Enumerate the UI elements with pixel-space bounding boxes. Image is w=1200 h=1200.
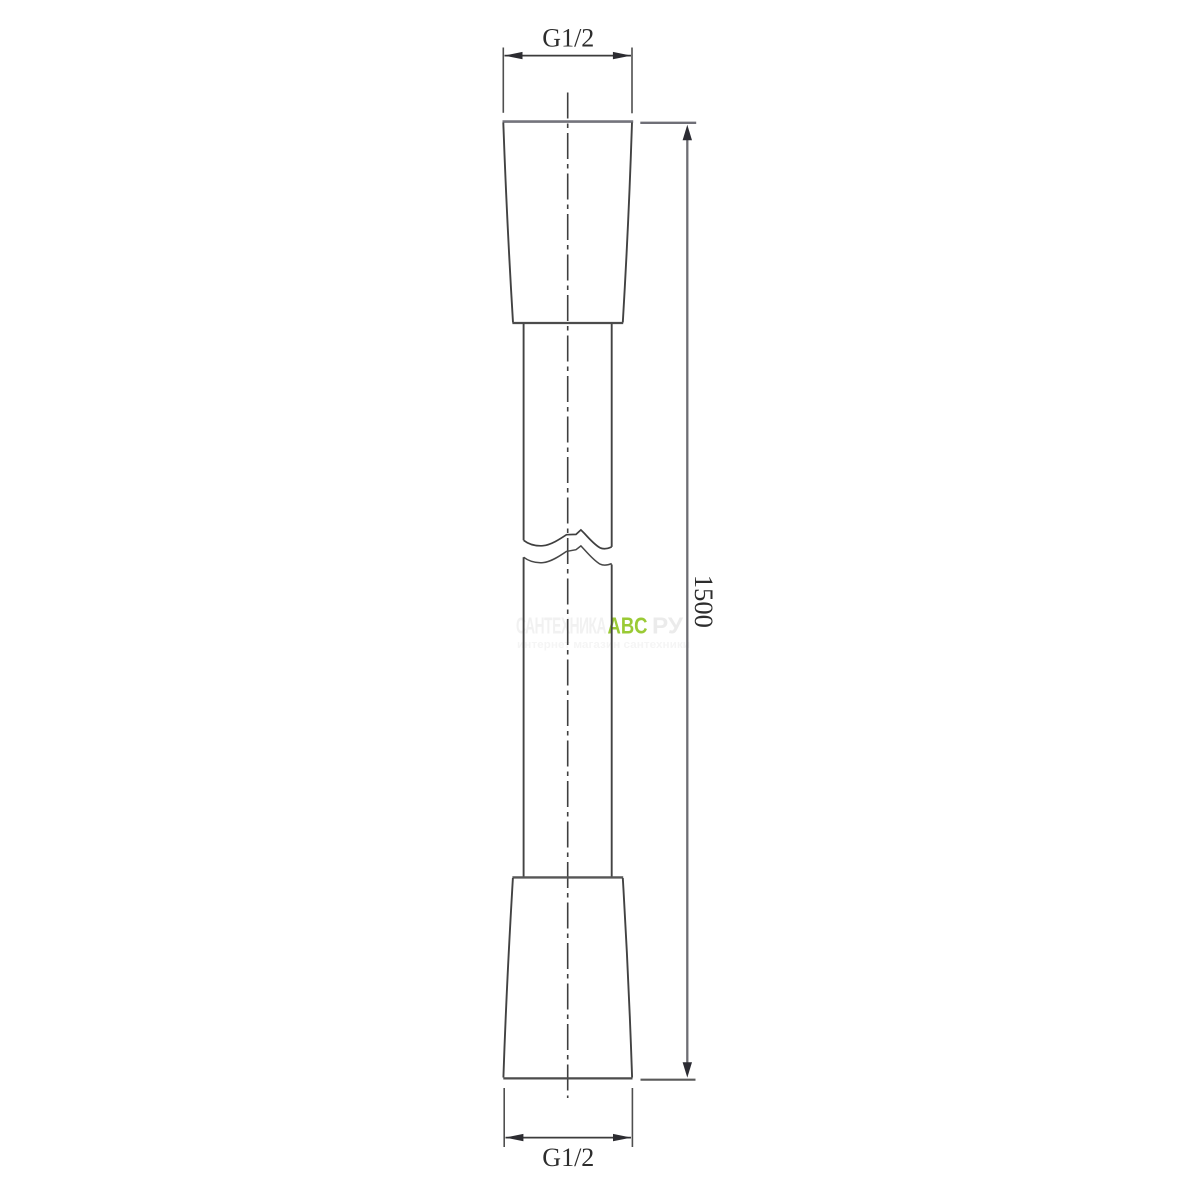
svg-text:ABC: ABC — [608, 613, 648, 639]
svg-text:РУ: РУ — [652, 613, 683, 639]
svg-text:1500: 1500 — [689, 575, 719, 628]
svg-text:G1/2: G1/2 — [542, 1143, 594, 1172]
svg-text:G1/2: G1/2 — [542, 24, 594, 53]
svg-text:интернет магазин сантехники: интернет магазин сантехники — [517, 639, 690, 651]
svg-text:САНТЕХНИКА: САНТЕХНИКА — [516, 613, 606, 639]
